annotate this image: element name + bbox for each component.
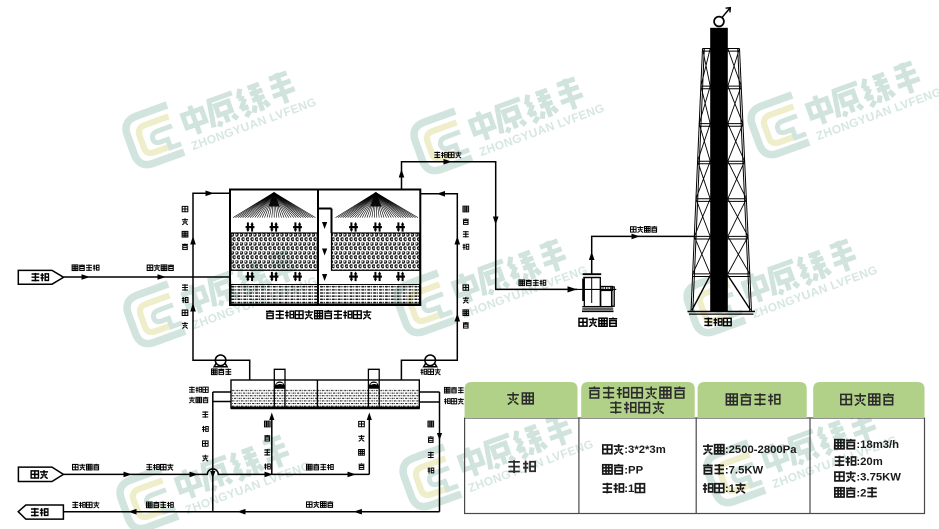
svg-text::3*2*3m: :3*2*3m [624,444,665,456]
svg-text::20m: :20m [856,456,882,468]
svg-text::2: :2 [856,487,866,499]
svg-text::3.75KW: :3.75KW [856,471,901,483]
svg-text::2500-2800Pa: :2500-2800Pa [725,444,797,456]
svg-text::1: :1 [624,483,634,495]
svg-text::18m3/h: :18m3/h [856,439,899,451]
svg-text::1: :1 [725,483,735,495]
svg-text::7.5KW: :7.5KW [725,464,764,476]
svg-text::PP: :PP [624,464,643,476]
